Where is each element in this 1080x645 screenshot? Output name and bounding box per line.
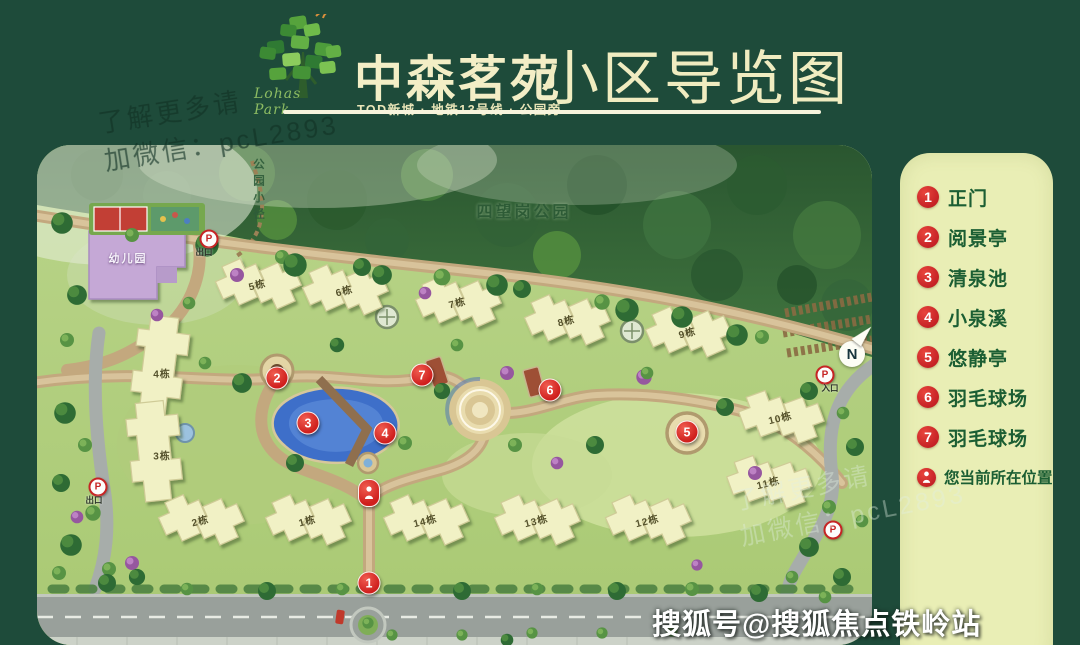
community-map: N: [37, 145, 872, 645]
current-location-marker: [358, 479, 380, 507]
compass: N: [839, 341, 865, 367]
map-marker-spring-pool: 3: [297, 412, 320, 435]
page-title: 小区导览图: [540, 31, 850, 116]
map-marker-small-stream: 4: [374, 422, 397, 445]
map-marker-badminton-6: 6: [539, 379, 562, 402]
exit-label-west: 出口: [85, 494, 102, 506]
legend-item-current-location: 您当前所在位置: [917, 465, 1053, 489]
community-guide-poster: Lohas Park 中森茗苑 TOD新城 · 地铁13号线 · 公园旁 小区导…: [0, 0, 1080, 645]
kindergarten-label: 幼儿园: [109, 250, 148, 266]
trail-name-label: 公园小径: [250, 158, 266, 224]
building-label-3: 3栋: [153, 448, 171, 463]
map-illustration: [37, 145, 872, 645]
legend-item-badminton-7: 7 羽毛球场: [917, 425, 1053, 449]
legend-badge-3: 3: [917, 266, 939, 288]
legend-item-quiet-pavilion: 5 悠静亭: [917, 345, 1053, 369]
parking-marker-southeast: P: [824, 521, 843, 540]
legend-badge-5: 5: [917, 346, 939, 368]
legend-badge-4: 4: [917, 306, 939, 328]
project-subtitle: TOD新城 · 地铁13号线 · 公园旁: [357, 99, 562, 118]
legend-panel: 1 正门 2 阅景亭 3 清泉池 4 小泉溪 5 悠静亭 6 羽毛球场: [900, 153, 1053, 645]
map-marker-badminton-7: 7: [411, 364, 434, 387]
legend-item-viewing-pavilion: 2 阅景亭: [917, 225, 1053, 249]
legend-person-icon: [917, 468, 936, 487]
map-marker-quiet-pavilion: 5: [676, 421, 699, 444]
entry-label-east: 入口: [821, 382, 838, 394]
title-underline: [283, 110, 821, 114]
legend-item-badminton-6: 6 羽毛球场: [917, 385, 1053, 409]
exit-label-north: 出口: [195, 246, 212, 258]
legend-item-small-stream: 4 小泉溪: [917, 305, 1053, 329]
legend-badge-1: 1: [917, 186, 939, 208]
map-marker-main-gate: 1: [358, 572, 381, 595]
legend-item-main-gate: 1 正门: [917, 185, 1053, 209]
legend-item-spring-pool: 3 清泉池: [917, 265, 1053, 289]
building-label-4: 4栋: [153, 366, 171, 381]
bird-sketch-icon: [316, 14, 328, 18]
legend-badge-2: 2: [917, 226, 939, 248]
map-marker-viewing-pavilion: 2: [266, 367, 289, 390]
park-name-label: 四望岗公园: [476, 198, 571, 222]
legend-badge-7: 7: [917, 426, 939, 448]
legend-badge-6: 6: [917, 386, 939, 408]
person-icon: [364, 486, 374, 500]
